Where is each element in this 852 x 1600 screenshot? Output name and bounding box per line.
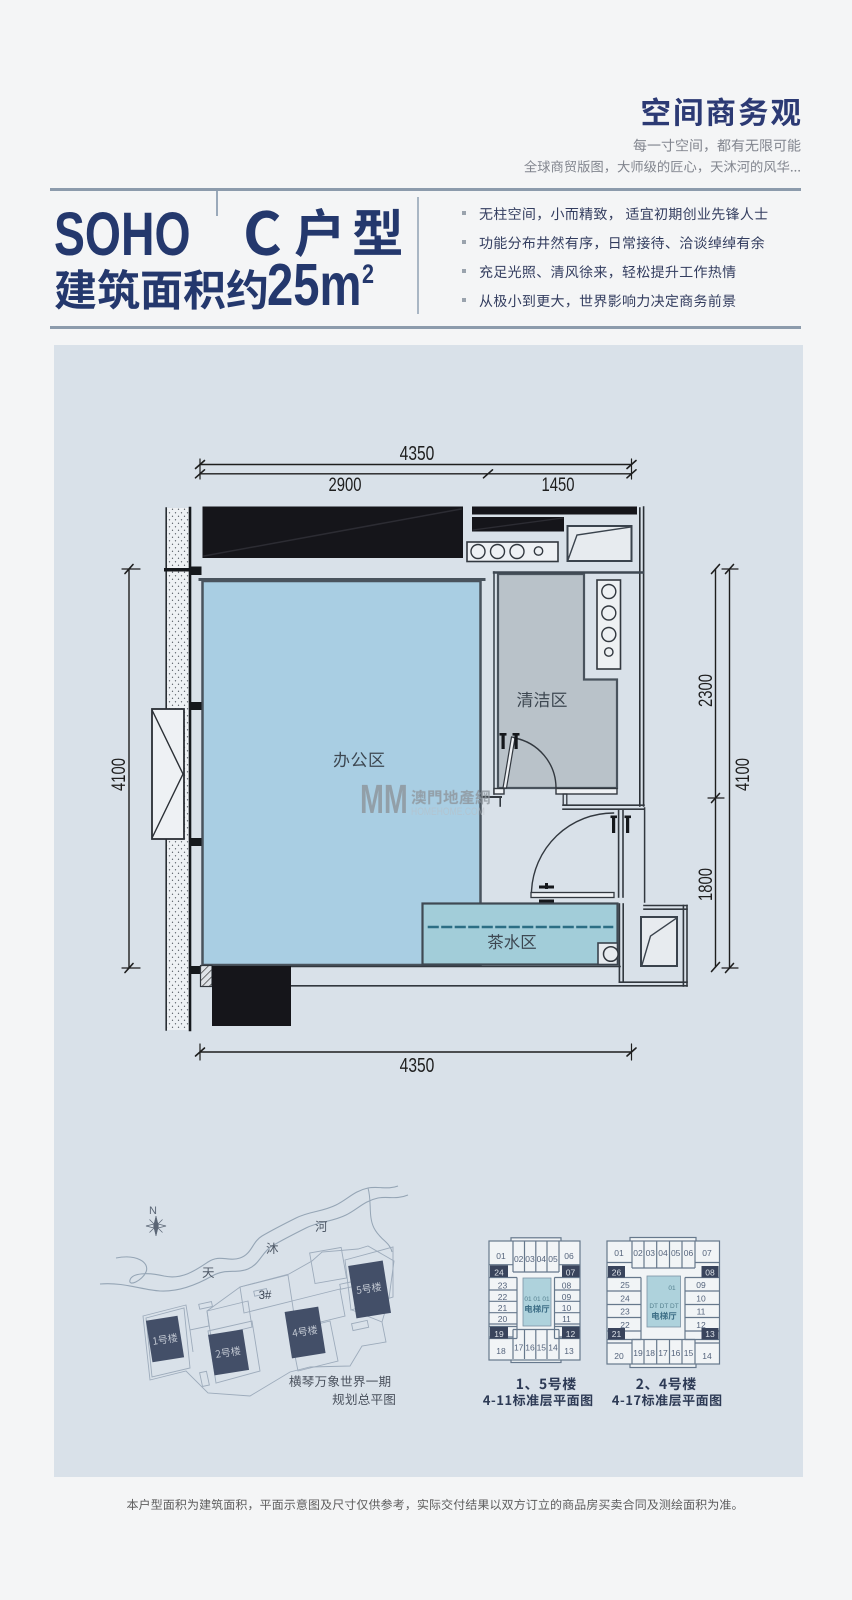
svg-text:18: 18 bbox=[646, 1348, 656, 1358]
svg-text:01 01 01: 01 01 01 bbox=[524, 1296, 550, 1303]
svg-text:4100: 4100 bbox=[108, 758, 129, 791]
svg-text:14: 14 bbox=[702, 1351, 712, 1361]
svg-text:21: 21 bbox=[498, 1303, 508, 1313]
svg-text:10: 10 bbox=[696, 1294, 706, 1304]
svg-text:05: 05 bbox=[548, 1254, 558, 1264]
svg-text:09: 09 bbox=[562, 1292, 572, 1302]
svg-text:05: 05 bbox=[671, 1248, 681, 1258]
svg-text:2300: 2300 bbox=[695, 674, 716, 707]
svg-text:26: 26 bbox=[612, 1267, 622, 1277]
svg-text:11: 11 bbox=[562, 1314, 571, 1324]
svg-text:17: 17 bbox=[514, 1343, 524, 1353]
svg-text:03: 03 bbox=[646, 1248, 656, 1258]
svg-text:13: 13 bbox=[705, 1329, 715, 1339]
svg-text:4350: 4350 bbox=[400, 442, 435, 464]
svg-text:02: 02 bbox=[633, 1248, 643, 1258]
svg-text:16: 16 bbox=[671, 1348, 681, 1358]
svg-text:20: 20 bbox=[498, 1314, 508, 1324]
svg-text:4350: 4350 bbox=[400, 1054, 435, 1076]
svg-text:24: 24 bbox=[620, 1294, 630, 1304]
svg-text:17: 17 bbox=[658, 1348, 668, 1358]
svg-text:07: 07 bbox=[702, 1248, 712, 1258]
svg-text:03: 03 bbox=[525, 1254, 535, 1264]
svg-text:25: 25 bbox=[620, 1280, 630, 1290]
svg-text:07: 07 bbox=[566, 1268, 576, 1278]
svg-text:3#: 3# bbox=[259, 1290, 272, 1302]
svg-text:06: 06 bbox=[564, 1251, 574, 1261]
svg-text:15: 15 bbox=[537, 1343, 547, 1353]
svg-text:2900: 2900 bbox=[329, 474, 362, 495]
svg-text:16: 16 bbox=[525, 1343, 535, 1353]
svg-text:MM: MM bbox=[360, 777, 408, 822]
svg-text:DT DT DT: DT DT DT bbox=[649, 1303, 678, 1310]
svg-text:23: 23 bbox=[498, 1281, 508, 1291]
svg-text:02: 02 bbox=[514, 1254, 524, 1264]
svg-text:08: 08 bbox=[562, 1281, 572, 1291]
svg-text:21: 21 bbox=[612, 1329, 622, 1339]
svg-text:19: 19 bbox=[494, 1329, 504, 1339]
svg-text:23: 23 bbox=[620, 1307, 630, 1317]
svg-text:18: 18 bbox=[496, 1346, 506, 1356]
svg-text:04: 04 bbox=[658, 1248, 668, 1258]
svg-text:14: 14 bbox=[548, 1343, 558, 1353]
svg-text:19: 19 bbox=[633, 1348, 643, 1358]
svg-text:HOMEHOME.COM: HOMEHOME.COM bbox=[411, 806, 485, 818]
svg-text:13: 13 bbox=[564, 1346, 574, 1356]
svg-text:15: 15 bbox=[684, 1348, 694, 1358]
svg-text:1450: 1450 bbox=[542, 474, 575, 495]
svg-text:4100: 4100 bbox=[732, 758, 753, 791]
svg-text:22: 22 bbox=[620, 1320, 630, 1330]
svg-text:04: 04 bbox=[537, 1254, 547, 1264]
svg-text:24: 24 bbox=[494, 1268, 504, 1278]
svg-text:09: 09 bbox=[696, 1280, 706, 1290]
svg-text:22: 22 bbox=[498, 1292, 508, 1302]
svg-text:01: 01 bbox=[496, 1251, 506, 1261]
svg-text:11: 11 bbox=[697, 1307, 706, 1317]
svg-text:1800: 1800 bbox=[695, 868, 716, 901]
svg-text:06: 06 bbox=[684, 1248, 694, 1258]
svg-text:N: N bbox=[149, 1205, 157, 1217]
svg-text:08: 08 bbox=[705, 1267, 715, 1277]
svg-text:12: 12 bbox=[566, 1329, 576, 1339]
svg-text:01: 01 bbox=[614, 1248, 624, 1258]
svg-text:01: 01 bbox=[668, 1285, 676, 1292]
svg-text:20: 20 bbox=[614, 1351, 624, 1361]
svg-text:10: 10 bbox=[562, 1303, 572, 1313]
